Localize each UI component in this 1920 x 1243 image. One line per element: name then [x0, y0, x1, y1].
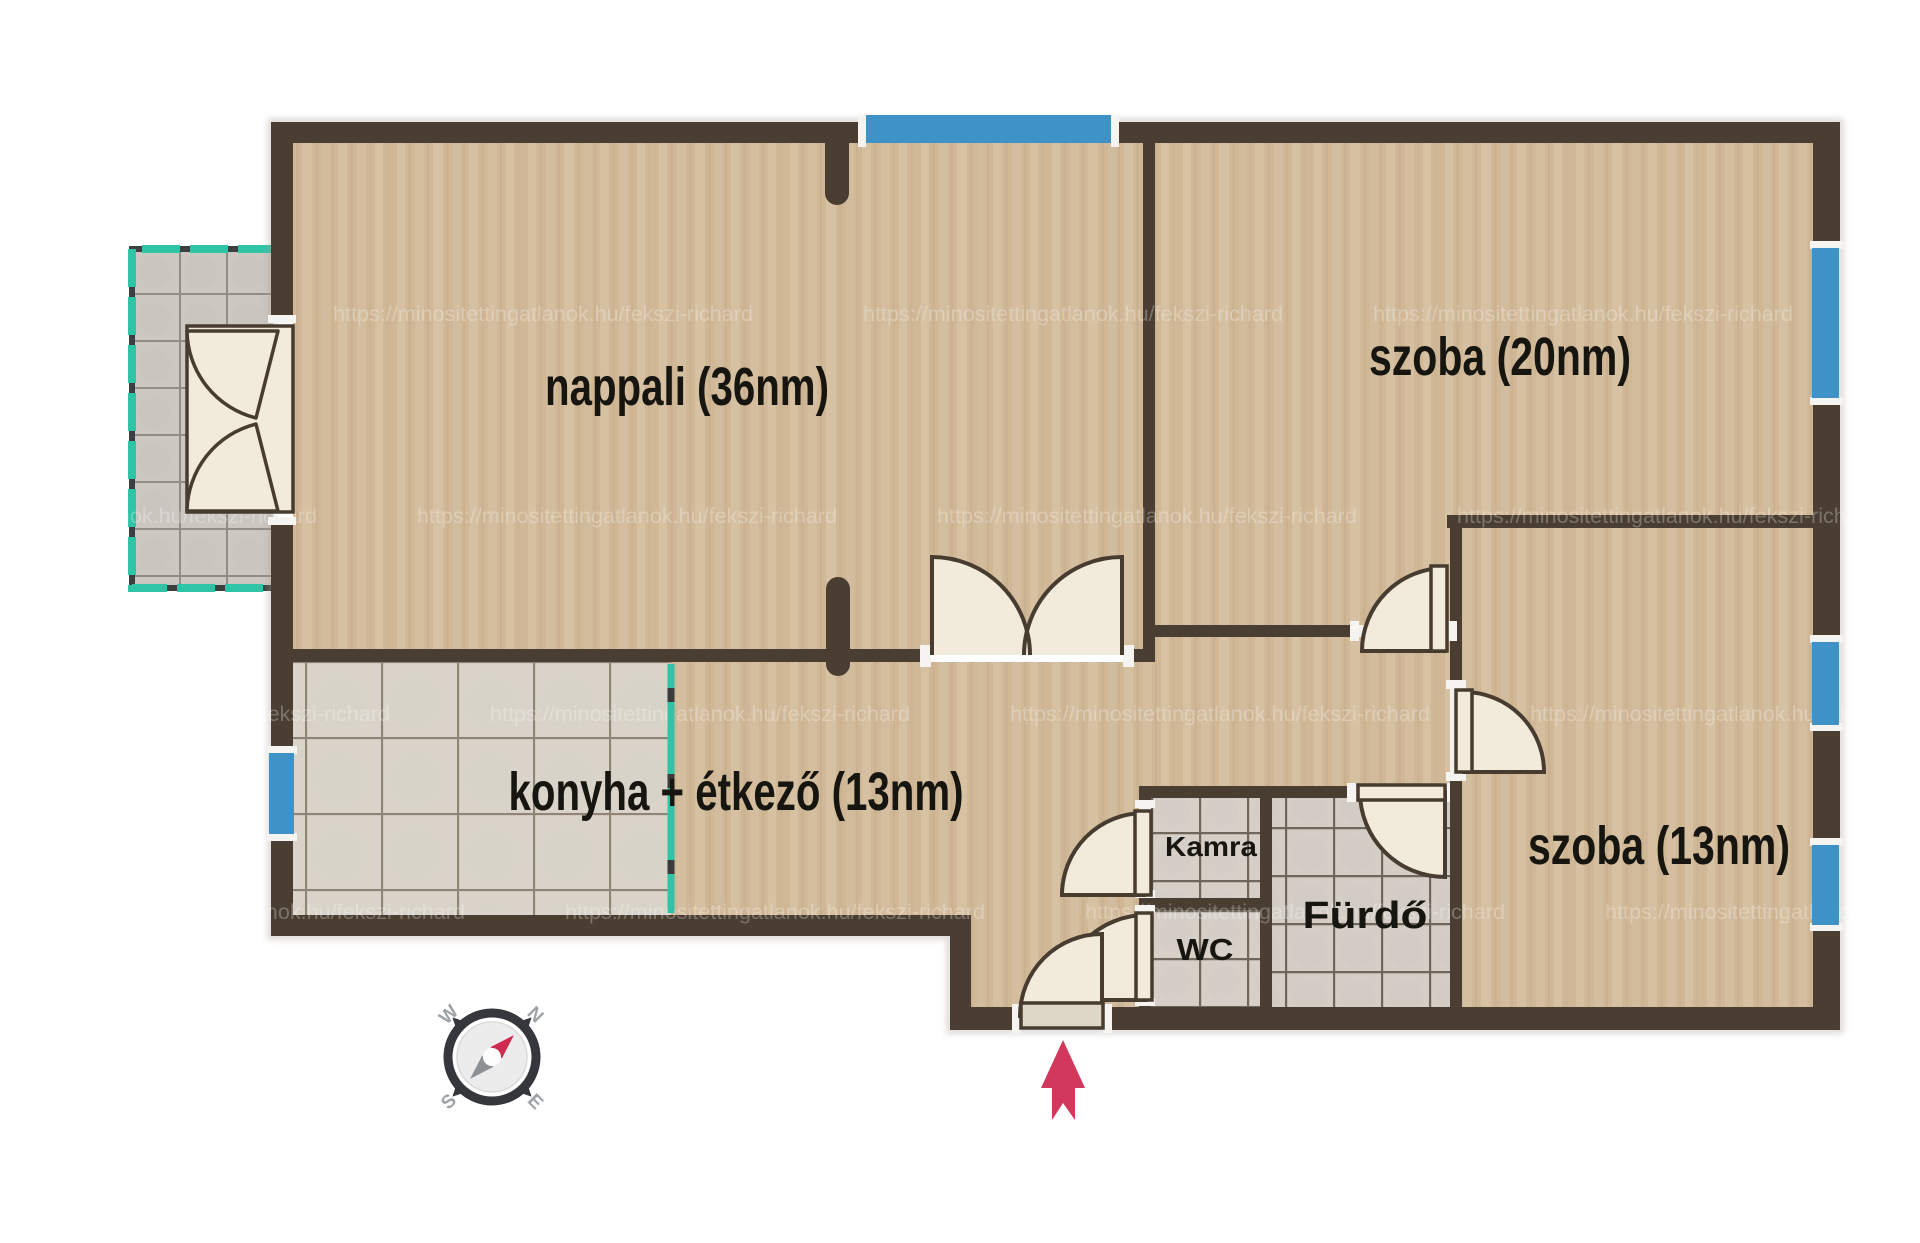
svg-text:szoba (13nm): szoba (13nm): [1528, 816, 1790, 876]
svg-text:https://minositettingatlanok.h: https://minositettingatlanok.hu/fekszi-r…: [333, 303, 753, 326]
svg-text:Fürdő: Fürdő: [1303, 895, 1428, 937]
svg-text:WC: WC: [1177, 932, 1234, 967]
svg-text:nappali (36nm): nappali (36nm): [545, 357, 829, 417]
svg-text:https://minositettingatlanok.h: https://minositettingatlanok.hu/fekszi-r…: [863, 303, 1283, 326]
svg-text:https://minositettingatlanok.h: https://minositettingatlanok.hu/fekszi-r…: [937, 505, 1357, 528]
svg-text:https://minositettingatlanok.h: https://minositettingatlanok.hu/fekszi-r…: [565, 901, 985, 924]
svg-text:https://minositettingatlanok.h: https://minositettingatlanok.hu/fekszi-r…: [1457, 505, 1877, 528]
svg-text:https://minositettingatlanok.h: https://minositettingatlanok.hu/fekszi-r…: [417, 505, 837, 528]
svg-text:Kamra: Kamra: [1165, 831, 1257, 862]
svg-text:https://minositettingatlanok.h: https://minositettingatlanok.hu/fekszi-r…: [1530, 703, 1920, 726]
svg-text:https://minositettingatlanok.h: https://minositettingatlanok.hu/fekszi-r…: [490, 703, 910, 726]
svg-text:konyha + étkező (13nm): konyha + étkező (13nm): [509, 762, 964, 822]
svg-text:https://minositettingatlanok.h: https://minositettingatlanok.hu/fekszi-r…: [0, 703, 390, 726]
svg-text:https://minositettingatlanok.h: https://minositettingatlanok.hu/fekszi-r…: [1010, 703, 1430, 726]
svg-text:https://minositettingatlanok.h: https://minositettingatlanok.hu/fekszi-r…: [45, 901, 465, 924]
svg-text:szoba (20nm): szoba (20nm): [1369, 327, 1631, 387]
svg-text:https://minositettingatlanok.h: https://minositettingatlanok.hu/fekszi-r…: [1373, 303, 1793, 326]
svg-text:https://minositettingatlanok.h: https://minositettingatlanok.hu/fekszi-r…: [1605, 901, 1920, 924]
